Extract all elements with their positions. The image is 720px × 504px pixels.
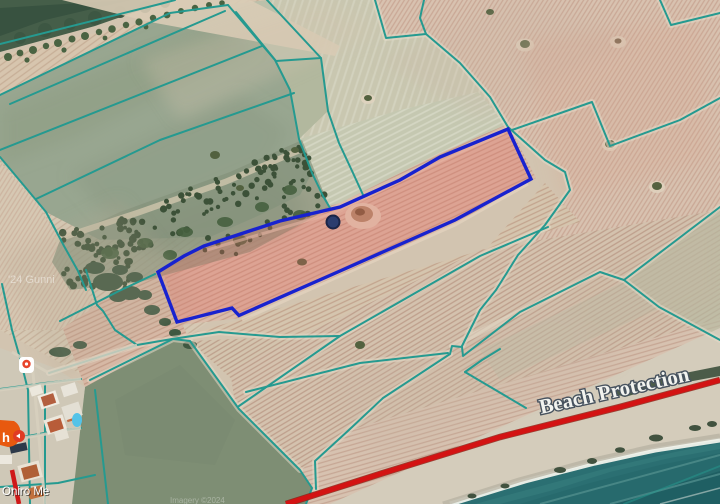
- svg-text:h: h: [2, 430, 10, 445]
- svg-text:Imagery ©2024: Imagery ©2024: [170, 496, 225, 504]
- svg-text:Oniro Me: Oniro Me: [2, 486, 49, 498]
- svg-text:'24 Gunni: '24 Gunni: [8, 274, 55, 286]
